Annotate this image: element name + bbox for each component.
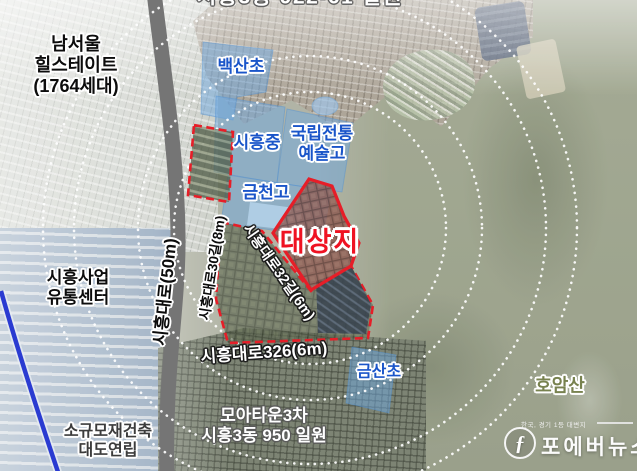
watermark-brand: 포에버뉴스 xyxy=(541,431,637,461)
label-baeksan-elementary: 백산초 xyxy=(218,57,265,77)
label-moa-town: 모아타운3차 시흥3동 950 일원 xyxy=(201,406,326,446)
satellite-map: 시흥3동 922-61 일원 남서울 힐스테이트 (1764세대) 백산초 시흥… xyxy=(0,0,637,471)
label-geumcheon-high: 금천고 xyxy=(243,183,290,203)
label-small-reconstruction: 소규모재건축 대도연립 xyxy=(64,423,152,461)
label-top-area: 시흥3동 922-61 일원 xyxy=(197,0,403,10)
school-track xyxy=(312,97,338,115)
stream-line xyxy=(1,291,58,471)
main-road xyxy=(154,0,178,471)
label-distribution-center: 시흥사업 유통센터 xyxy=(47,268,110,308)
watermark-tagline: 한국, 경기 1등 대변지 xyxy=(521,419,586,429)
label-national-arts-high: 국립전통 예술고 xyxy=(291,124,354,164)
label-namseoul-hillstate: 남서울 힐스테이트 (1764세대) xyxy=(33,34,118,98)
site-west-apartments xyxy=(188,125,233,202)
label-siheung-middle: 시흥중 xyxy=(234,133,281,153)
watermark-rule xyxy=(597,422,633,424)
forever-news-logo-icon: ƒ xyxy=(504,427,536,459)
label-geumsan-elementary: 금산초 xyxy=(357,364,401,383)
label-target-site: 대상지 xyxy=(280,227,361,259)
label-hoam-mountain: 호암산 xyxy=(535,375,585,396)
